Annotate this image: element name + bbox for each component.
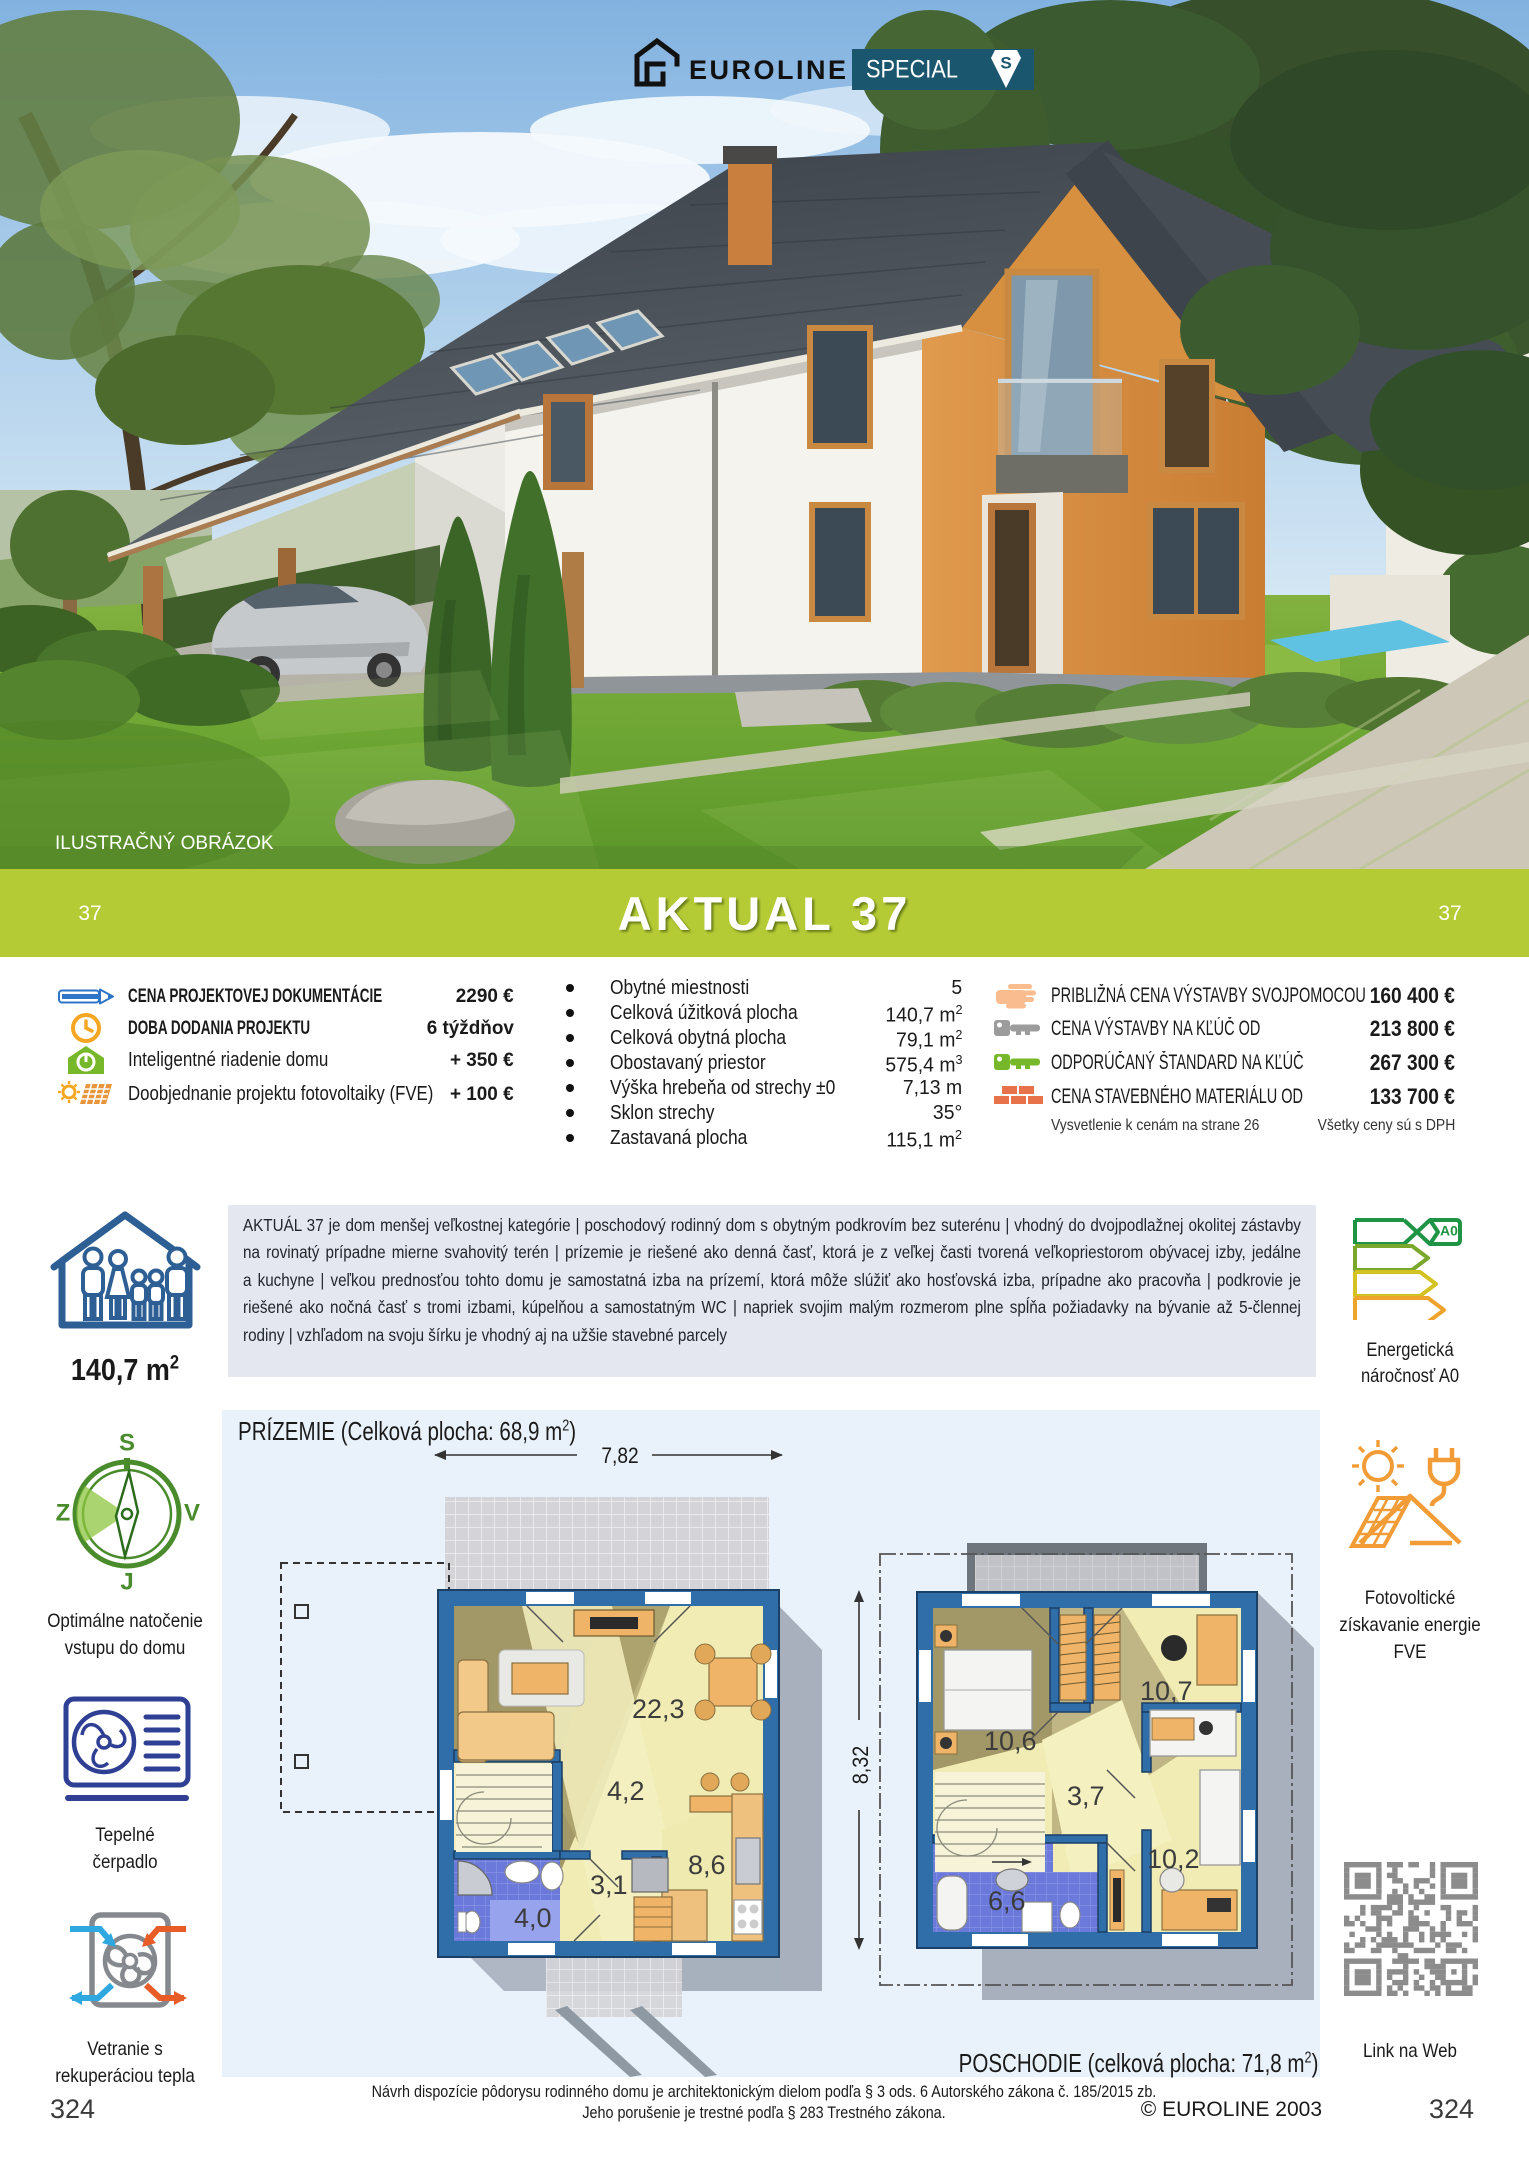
- svg-text:S: S: [1000, 53, 1011, 72]
- svg-text:3,1: 3,1: [590, 1870, 628, 1900]
- svg-text:4,0: 4,0: [514, 1903, 552, 1933]
- svg-text:ILUSTRAČNÝ OBRÁZOK: ILUSTRAČNÝ OBRÁZOK: [55, 832, 274, 854]
- svg-text:10,6: 10,6: [984, 1726, 1037, 1756]
- svg-text:EUROLINE: EUROLINE: [689, 55, 849, 85]
- svg-text:Z: Z: [56, 1499, 71, 1526]
- svg-text:22,3: 22,3: [632, 1694, 685, 1724]
- svg-text:A0: A0: [1440, 1223, 1458, 1239]
- svg-text:10,2: 10,2: [1147, 1844, 1200, 1874]
- svg-text:6,6: 6,6: [988, 1886, 1026, 1916]
- svg-text:SPECIAL: SPECIAL: [866, 56, 958, 84]
- svg-text:V: V: [184, 1499, 200, 1526]
- svg-text:10,7: 10,7: [1140, 1676, 1193, 1706]
- svg-text:3,7: 3,7: [1067, 1781, 1105, 1811]
- svg-text:8,6: 8,6: [688, 1850, 726, 1880]
- svg-text:J: J: [120, 1568, 133, 1592]
- svg-text:S: S: [119, 1432, 135, 1456]
- svg-text:4,2: 4,2: [607, 1776, 645, 1806]
